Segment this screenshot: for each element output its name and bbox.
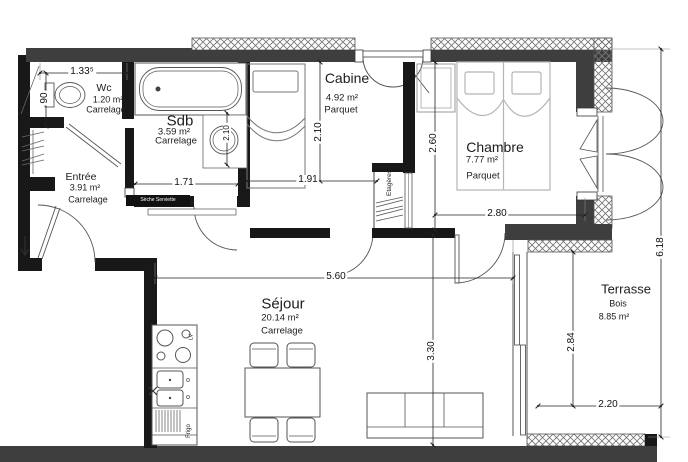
sofa bbox=[367, 393, 483, 438]
room-floor-terrasse: Bois bbox=[609, 300, 627, 309]
etageres-label: Etagères bbox=[387, 170, 394, 196]
dim-terrasse-width: 2.20 bbox=[596, 400, 619, 410]
lave-vaisselle-label: LV bbox=[189, 334, 195, 340]
room-area-sejour: 20.14 m² bbox=[261, 313, 299, 323]
drain-icon bbox=[156, 87, 161, 92]
room-floor-chambre: Parquet bbox=[466, 171, 499, 181]
chambre-door-leaf bbox=[455, 235, 459, 283]
room-name-sejour: Séjour bbox=[261, 297, 304, 312]
room-floor-sdb: Carrelage bbox=[155, 136, 197, 146]
dim-chambre-depth: 2.60 bbox=[429, 131, 439, 154]
room-name-terrasse: Terrasse bbox=[601, 283, 651, 296]
dim-wc-depth: 90 bbox=[40, 90, 50, 105]
dim-cabine-depth: 2.10 bbox=[314, 120, 324, 143]
sliding-door bbox=[513, 252, 527, 436]
room-name-chambre: Chambre bbox=[466, 140, 524, 154]
chambre-door-arc bbox=[455, 233, 505, 283]
room-area-entree: 3.91 m² bbox=[70, 184, 101, 193]
room-area-chambre: 7.77 m² bbox=[466, 155, 498, 165]
dim-sdb-width: 1.71 bbox=[172, 178, 195, 188]
room-floor-entree: Carrelage bbox=[68, 196, 108, 205]
dim-sejour-depth: 3.30 bbox=[427, 339, 437, 362]
chair bbox=[287, 418, 315, 442]
bathtub bbox=[135, 63, 246, 115]
room-floor-sejour: Carrelage bbox=[261, 326, 303, 336]
dim-sejour-width: 5.60 bbox=[324, 272, 347, 282]
dim-cabine-width: 1.91 bbox=[296, 175, 319, 185]
room-name-cabine: Cabine bbox=[325, 71, 369, 85]
room-floor-cabine: Parquet bbox=[324, 105, 357, 115]
dim-chambre-width: 2.80 bbox=[485, 209, 508, 219]
seche-serviette-label: Sèche Serviette bbox=[126, 195, 190, 206]
cabine-bed bbox=[247, 64, 305, 188]
chair bbox=[287, 343, 315, 367]
frigo-label: Frigo bbox=[186, 424, 192, 438]
chambre-window bbox=[577, 88, 663, 220]
dining-table bbox=[245, 368, 320, 417]
dim-total-depth: 6.18 bbox=[656, 235, 666, 258]
dim-terrasse-depth: 2.84 bbox=[567, 330, 577, 353]
room-name-entree: Entrée bbox=[66, 172, 97, 183]
entrance-door bbox=[363, 51, 429, 93]
room-area-cabine: 4.92 m² bbox=[326, 93, 358, 103]
chair bbox=[250, 418, 278, 442]
cabine-door-arc bbox=[330, 233, 373, 276]
room-floor-wc: Carrelage bbox=[86, 106, 126, 115]
dim-wc-width: 1.33⁵ bbox=[68, 67, 96, 77]
wc-door-leaf bbox=[66, 124, 121, 167]
dim-sdb-depth: 2.10 bbox=[223, 123, 231, 143]
toilet bbox=[45, 83, 85, 108]
room-area-terrasse: 8.85 m² bbox=[599, 313, 630, 322]
chambre-wardrobe bbox=[417, 64, 455, 112]
towel-radiator bbox=[148, 209, 236, 215]
entree-door-leaf bbox=[38, 206, 60, 259]
room-name-wc: Wc bbox=[96, 83, 111, 94]
chair bbox=[250, 343, 278, 367]
shutter-swing-arcs bbox=[606, 88, 663, 220]
shelves-symbol bbox=[376, 197, 403, 221]
floor-plan: Wc 1.20 m² Carrelage Sdb 3.59 m² Carrela… bbox=[0, 0, 688, 462]
dining-set bbox=[245, 343, 320, 442]
room-area-wc: 1.20 m² bbox=[93, 96, 124, 105]
